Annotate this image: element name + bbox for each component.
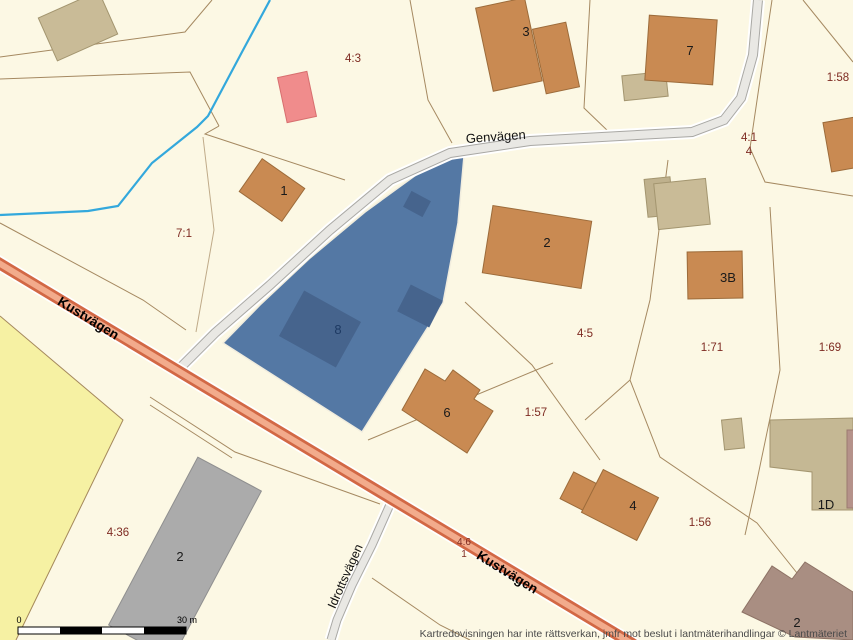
parcel-label-1-56: 1:56 <box>689 517 711 529</box>
map-viewport[interactable]: 4:3 7:1 1:58 4:1 4 4:5 1:71 1:69 1:57 1:… <box>0 0 853 640</box>
building-label-2-center: 2 <box>543 235 550 250</box>
building-label-6: 6 <box>443 405 450 420</box>
building-label-2-gray: 2 <box>176 549 183 564</box>
cadastral-map: 4:3 7:1 1:58 4:1 4 4:5 1:71 1:69 1:57 1:… <box>0 0 853 640</box>
building-right-edge-sliver <box>847 430 853 508</box>
parcel-label-1-58: 1:58 <box>827 72 849 84</box>
building-label-3: 3 <box>522 24 529 39</box>
parcel-label-1-71: 1:71 <box>701 342 723 354</box>
parcel-label-4: 4 <box>746 146 753 158</box>
parcel-label-1-57: 1:57 <box>525 407 547 419</box>
building-label-7: 7 <box>686 43 693 58</box>
parcel-label-7-1: 7:1 <box>176 228 192 240</box>
parcel-label-4-6: 4:6 <box>457 537 471 548</box>
building-7 <box>645 15 717 85</box>
outbuilding-bottom-small <box>721 418 744 450</box>
parcel-label-4-36: 4:36 <box>107 527 129 539</box>
scale-min-label: 0 <box>16 615 21 625</box>
parcel-label-4-3: 4:3 <box>345 53 361 65</box>
scale-max-label: 30 m <box>177 615 197 625</box>
building-label-1d: 1D <box>818 497 835 512</box>
attribution-text: Kartredovisningen har inte rättsverkan, … <box>420 628 847 640</box>
building-label-3b: 3B <box>720 270 736 285</box>
parcel-label-4-1: 4:1 <box>741 132 757 144</box>
building-label-1: 1 <box>280 183 287 198</box>
parcel-label-1-69: 1:69 <box>819 342 841 354</box>
building-label-8: 8 <box>334 322 341 337</box>
parcel-label-4-5: 4:5 <box>577 328 593 340</box>
outbuilding-mid <box>654 178 711 229</box>
parcel-label-4-6b: 1 <box>461 549 467 560</box>
building-label-4: 4 <box>629 498 636 513</box>
